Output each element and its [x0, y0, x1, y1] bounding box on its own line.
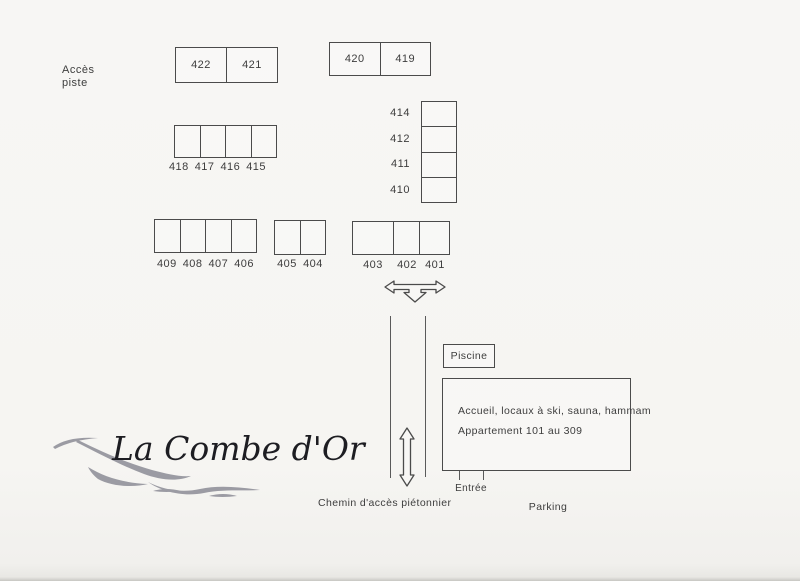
building-block-418-415: [174, 125, 277, 158]
building-block-405-404: [274, 220, 326, 255]
block-418-415-labels: 418 417 416 415: [166, 161, 269, 173]
unit-420: 420: [330, 43, 380, 75]
acces-piste-line1: Accès: [62, 64, 94, 77]
unit-label-416: 416: [218, 161, 244, 173]
three-way-arrow-icon: [384, 279, 446, 303]
unit-label-418: 418: [166, 161, 192, 173]
entrance-tick-right: [483, 471, 484, 480]
unit-402: [393, 222, 419, 254]
unit-label-422: 422: [191, 59, 211, 71]
scan-edge-shadow: [0, 577, 800, 581]
unit-label-421: 421: [242, 59, 262, 71]
unit-404: [300, 221, 326, 254]
pedestrian-path-left-line: [390, 316, 391, 478]
site-map: Accès piste 422 421 420 419 414 412 411 …: [0, 0, 800, 581]
unit-415: [251, 126, 277, 157]
block-409-406-labels: 409 408 407 406: [154, 258, 257, 270]
two-way-arrow-icon: [398, 427, 416, 487]
unit-label-417: 417: [192, 161, 218, 173]
unit-label-403: 403: [352, 259, 394, 271]
unit-411: [422, 152, 456, 177]
pedestrian-path-right-line: [425, 316, 426, 477]
reception-apartments-label: Appartement 101 au 309: [458, 425, 582, 437]
building-block-422-421: 422 421: [175, 47, 278, 83]
unit-label-412: 412: [384, 133, 410, 145]
unit-419: 419: [380, 43, 431, 75]
parking-label: Parking: [527, 501, 569, 513]
unit-410: [422, 177, 456, 202]
acces-piste-line2: piste: [62, 77, 94, 90]
building-block-414-410: [421, 101, 457, 203]
unit-label-404: 404: [300, 258, 326, 270]
building-block-403-401: [352, 221, 450, 255]
unit-407: [205, 220, 231, 252]
unit-409: [155, 220, 180, 252]
unit-label-407: 407: [206, 258, 232, 270]
unit-422: 422: [176, 48, 226, 82]
logo-text: La Combe d'Or: [112, 429, 365, 468]
unit-412: [422, 126, 456, 151]
building-block-420-419: 420 419: [329, 42, 431, 76]
unit-421: 421: [226, 48, 277, 82]
acces-piste-label: Accès piste: [62, 64, 94, 89]
building-block-409-406: [154, 219, 257, 253]
unit-label-405: 405: [274, 258, 300, 270]
unit-label-402: 402: [394, 259, 420, 271]
unit-408: [180, 220, 206, 252]
unit-416: [225, 126, 251, 157]
unit-417: [200, 126, 226, 157]
entrance-tick-left: [459, 471, 460, 480]
block-403-401-labels: 403 402 401: [352, 259, 450, 271]
unit-label-410: 410: [384, 184, 410, 196]
unit-label-401: 401: [420, 259, 450, 271]
entrance-label: Entrée: [450, 483, 492, 494]
pool-box: Piscine: [443, 344, 495, 368]
unit-401: [419, 222, 449, 254]
pedestrian-path-label: Chemin d'accès piétonnier: [318, 497, 451, 509]
unit-403: [353, 222, 393, 254]
unit-414: [422, 102, 456, 126]
block-405-404-labels: 405 404: [274, 258, 326, 270]
unit-label-420: 420: [345, 53, 365, 65]
unit-label-408: 408: [180, 258, 206, 270]
unit-418: [175, 126, 200, 157]
unit-label-414: 414: [384, 107, 410, 119]
pool-label: Piscine: [451, 350, 488, 362]
unit-label-409: 409: [154, 258, 180, 270]
reception-services-label: Accueil, locaux à ski, sauna, hammam: [458, 405, 651, 417]
unit-label-411: 411: [384, 158, 410, 170]
unit-label-415: 415: [243, 161, 269, 173]
unit-406: [231, 220, 257, 252]
unit-label-419: 419: [395, 53, 415, 65]
unit-label-406: 406: [231, 258, 257, 270]
unit-405: [275, 221, 300, 254]
